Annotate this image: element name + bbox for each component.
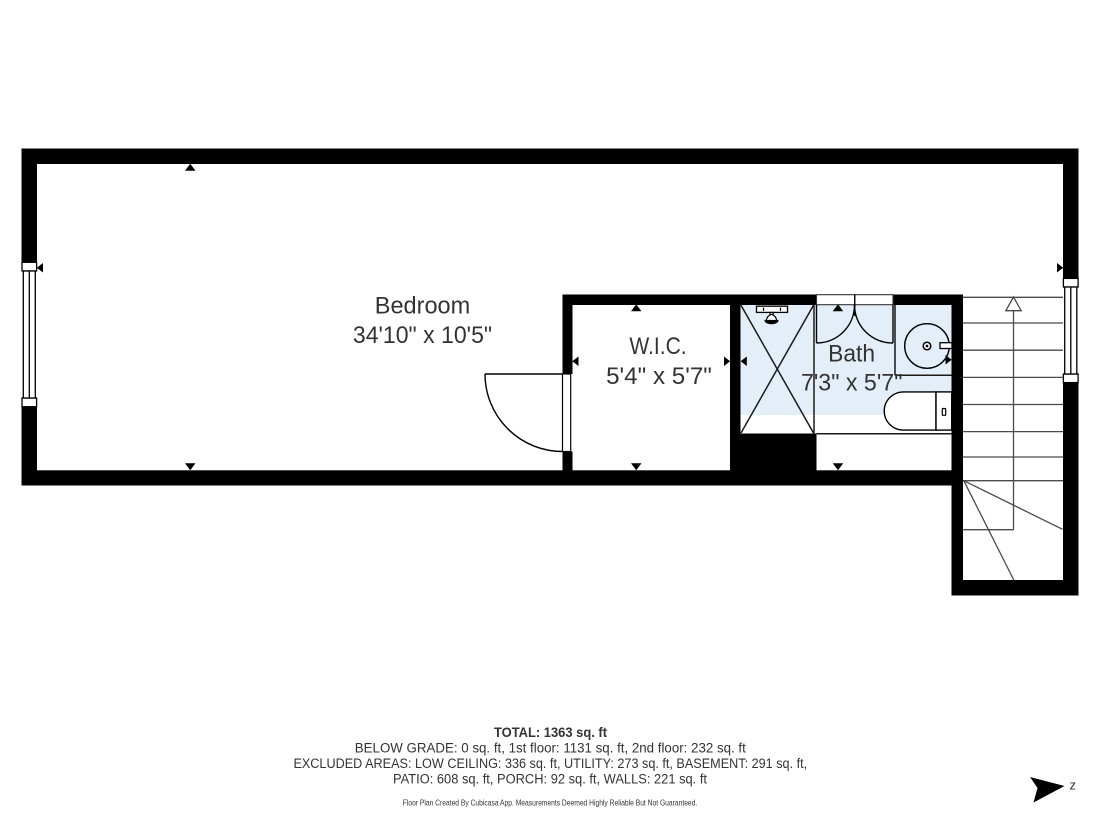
svg-text:5'4" x 5'7": 5'4" x 5'7" bbox=[606, 363, 712, 390]
svg-text:PATIO: 608 sq. ft, PORCH: 92 s: PATIO: 608 sq. ft, PORCH: 92 sq. ft, WAL… bbox=[393, 772, 707, 787]
svg-text:34'10" x 10'5": 34'10" x 10'5" bbox=[353, 322, 492, 349]
svg-text:z: z bbox=[1070, 778, 1077, 793]
svg-text:EXCLUDED AREAS: LOW CEILING: 3: EXCLUDED AREAS: LOW CEILING: 336 sq. ft,… bbox=[293, 756, 807, 771]
svg-text:7'3" x 5'7": 7'3" x 5'7" bbox=[801, 370, 903, 397]
svg-text:Bath: Bath bbox=[828, 341, 875, 368]
svg-text:W.I.C.: W.I.C. bbox=[629, 333, 686, 360]
svg-text:Floor Plan Created By Cubicasa: Floor Plan Created By Cubicasa App. Meas… bbox=[403, 798, 698, 807]
svg-text:BELOW GRADE: 0 sq. ft, 1st flo: BELOW GRADE: 0 sq. ft, 1st floor: 1131 s… bbox=[355, 740, 746, 755]
svg-text:TOTAL: 1363 sq. ft: TOTAL: 1363 sq. ft bbox=[494, 724, 607, 740]
svg-text:Bedroom: Bedroom bbox=[375, 293, 471, 320]
